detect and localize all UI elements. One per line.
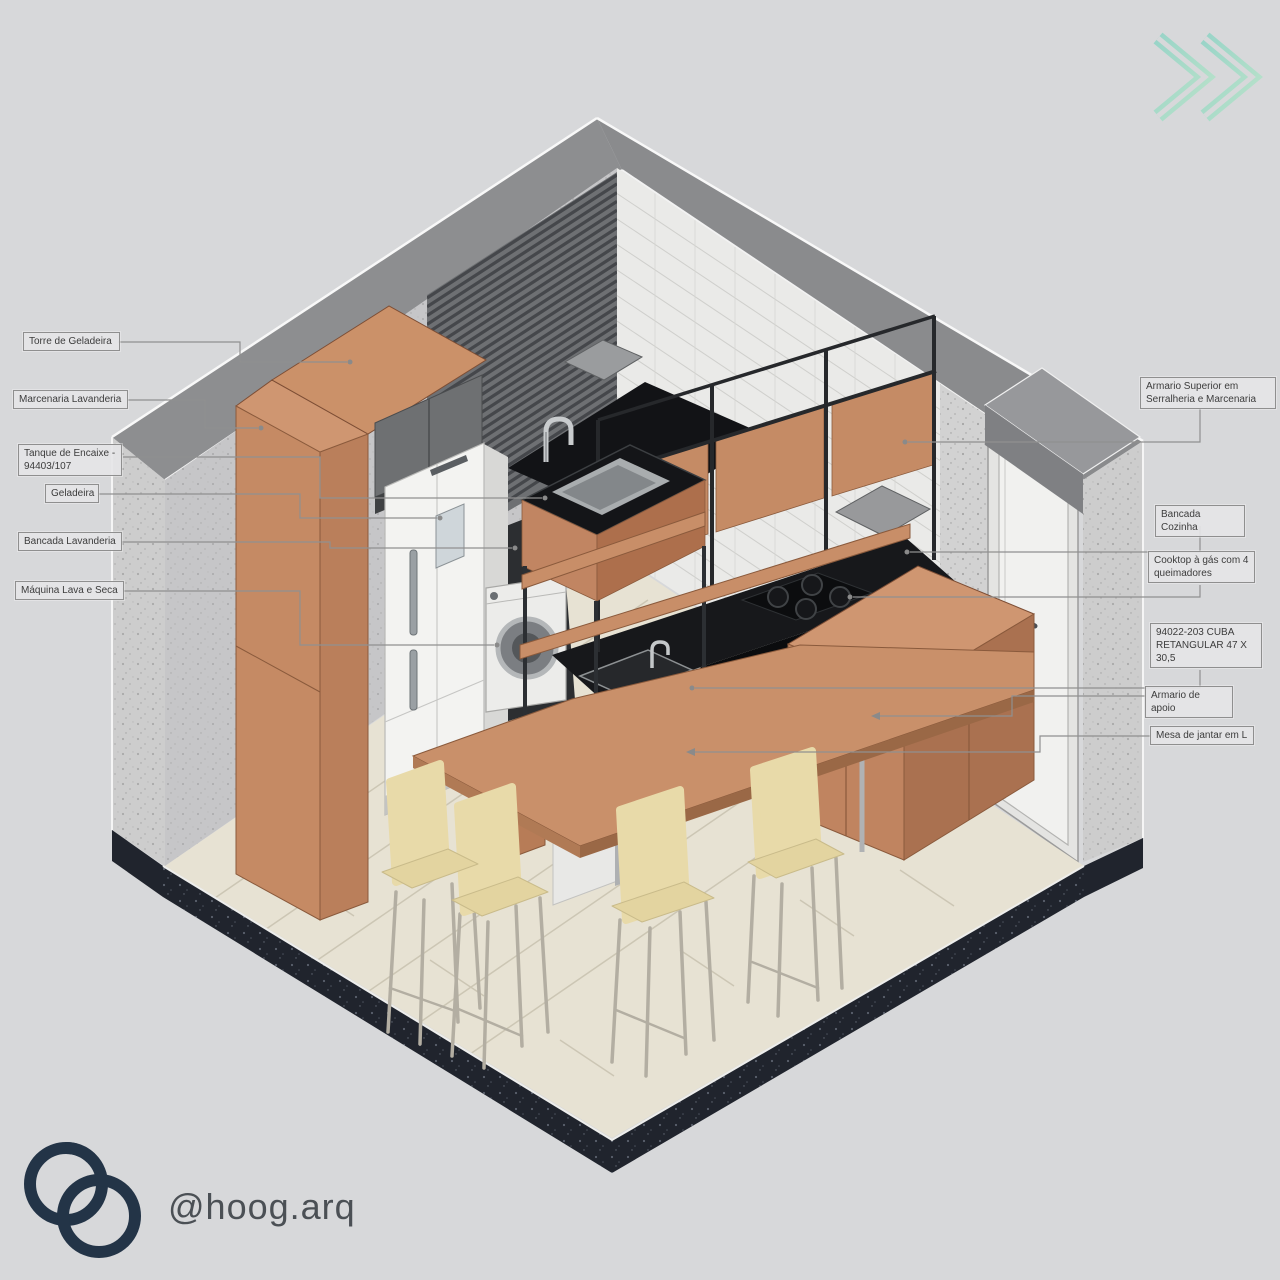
annotation-label: Tanque de Encaixe - 94403/107 — [18, 444, 122, 476]
annotation-label: Marcenaria Lavanderia — [13, 390, 128, 409]
annotation-label: Geladeira — [45, 484, 99, 503]
annotation-label: Mesa de jantar em L — [1150, 726, 1254, 745]
isometric-kitchen-scene — [0, 0, 1280, 1280]
annotation-label: Máquina Lava e Seca — [15, 581, 124, 600]
annotation-label: Bancada Lavanderia — [18, 532, 122, 551]
annotation-label: Armario Superior em Serralheria e Marcen… — [1140, 377, 1276, 409]
double-chevron-right-icon — [1158, 38, 1252, 116]
annotation-label: Torre de Geladeira — [23, 332, 120, 351]
instagram-handle: @hoog.arq — [168, 1186, 356, 1228]
annotation-label: Armario de apoio — [1145, 686, 1233, 718]
annotation-label: 94022-203 CUBA RETANGULAR 47 X 30,5 — [1150, 623, 1262, 668]
interlocking-circles-logo — [30, 1148, 135, 1252]
annotation-label: Cooktop à gás com 4 queimadores — [1148, 551, 1255, 583]
architectural-post: Torre de Geladeira Marcenaria Lavanderia… — [0, 0, 1280, 1280]
annotation-label: Bancada Cozinha — [1155, 505, 1245, 537]
